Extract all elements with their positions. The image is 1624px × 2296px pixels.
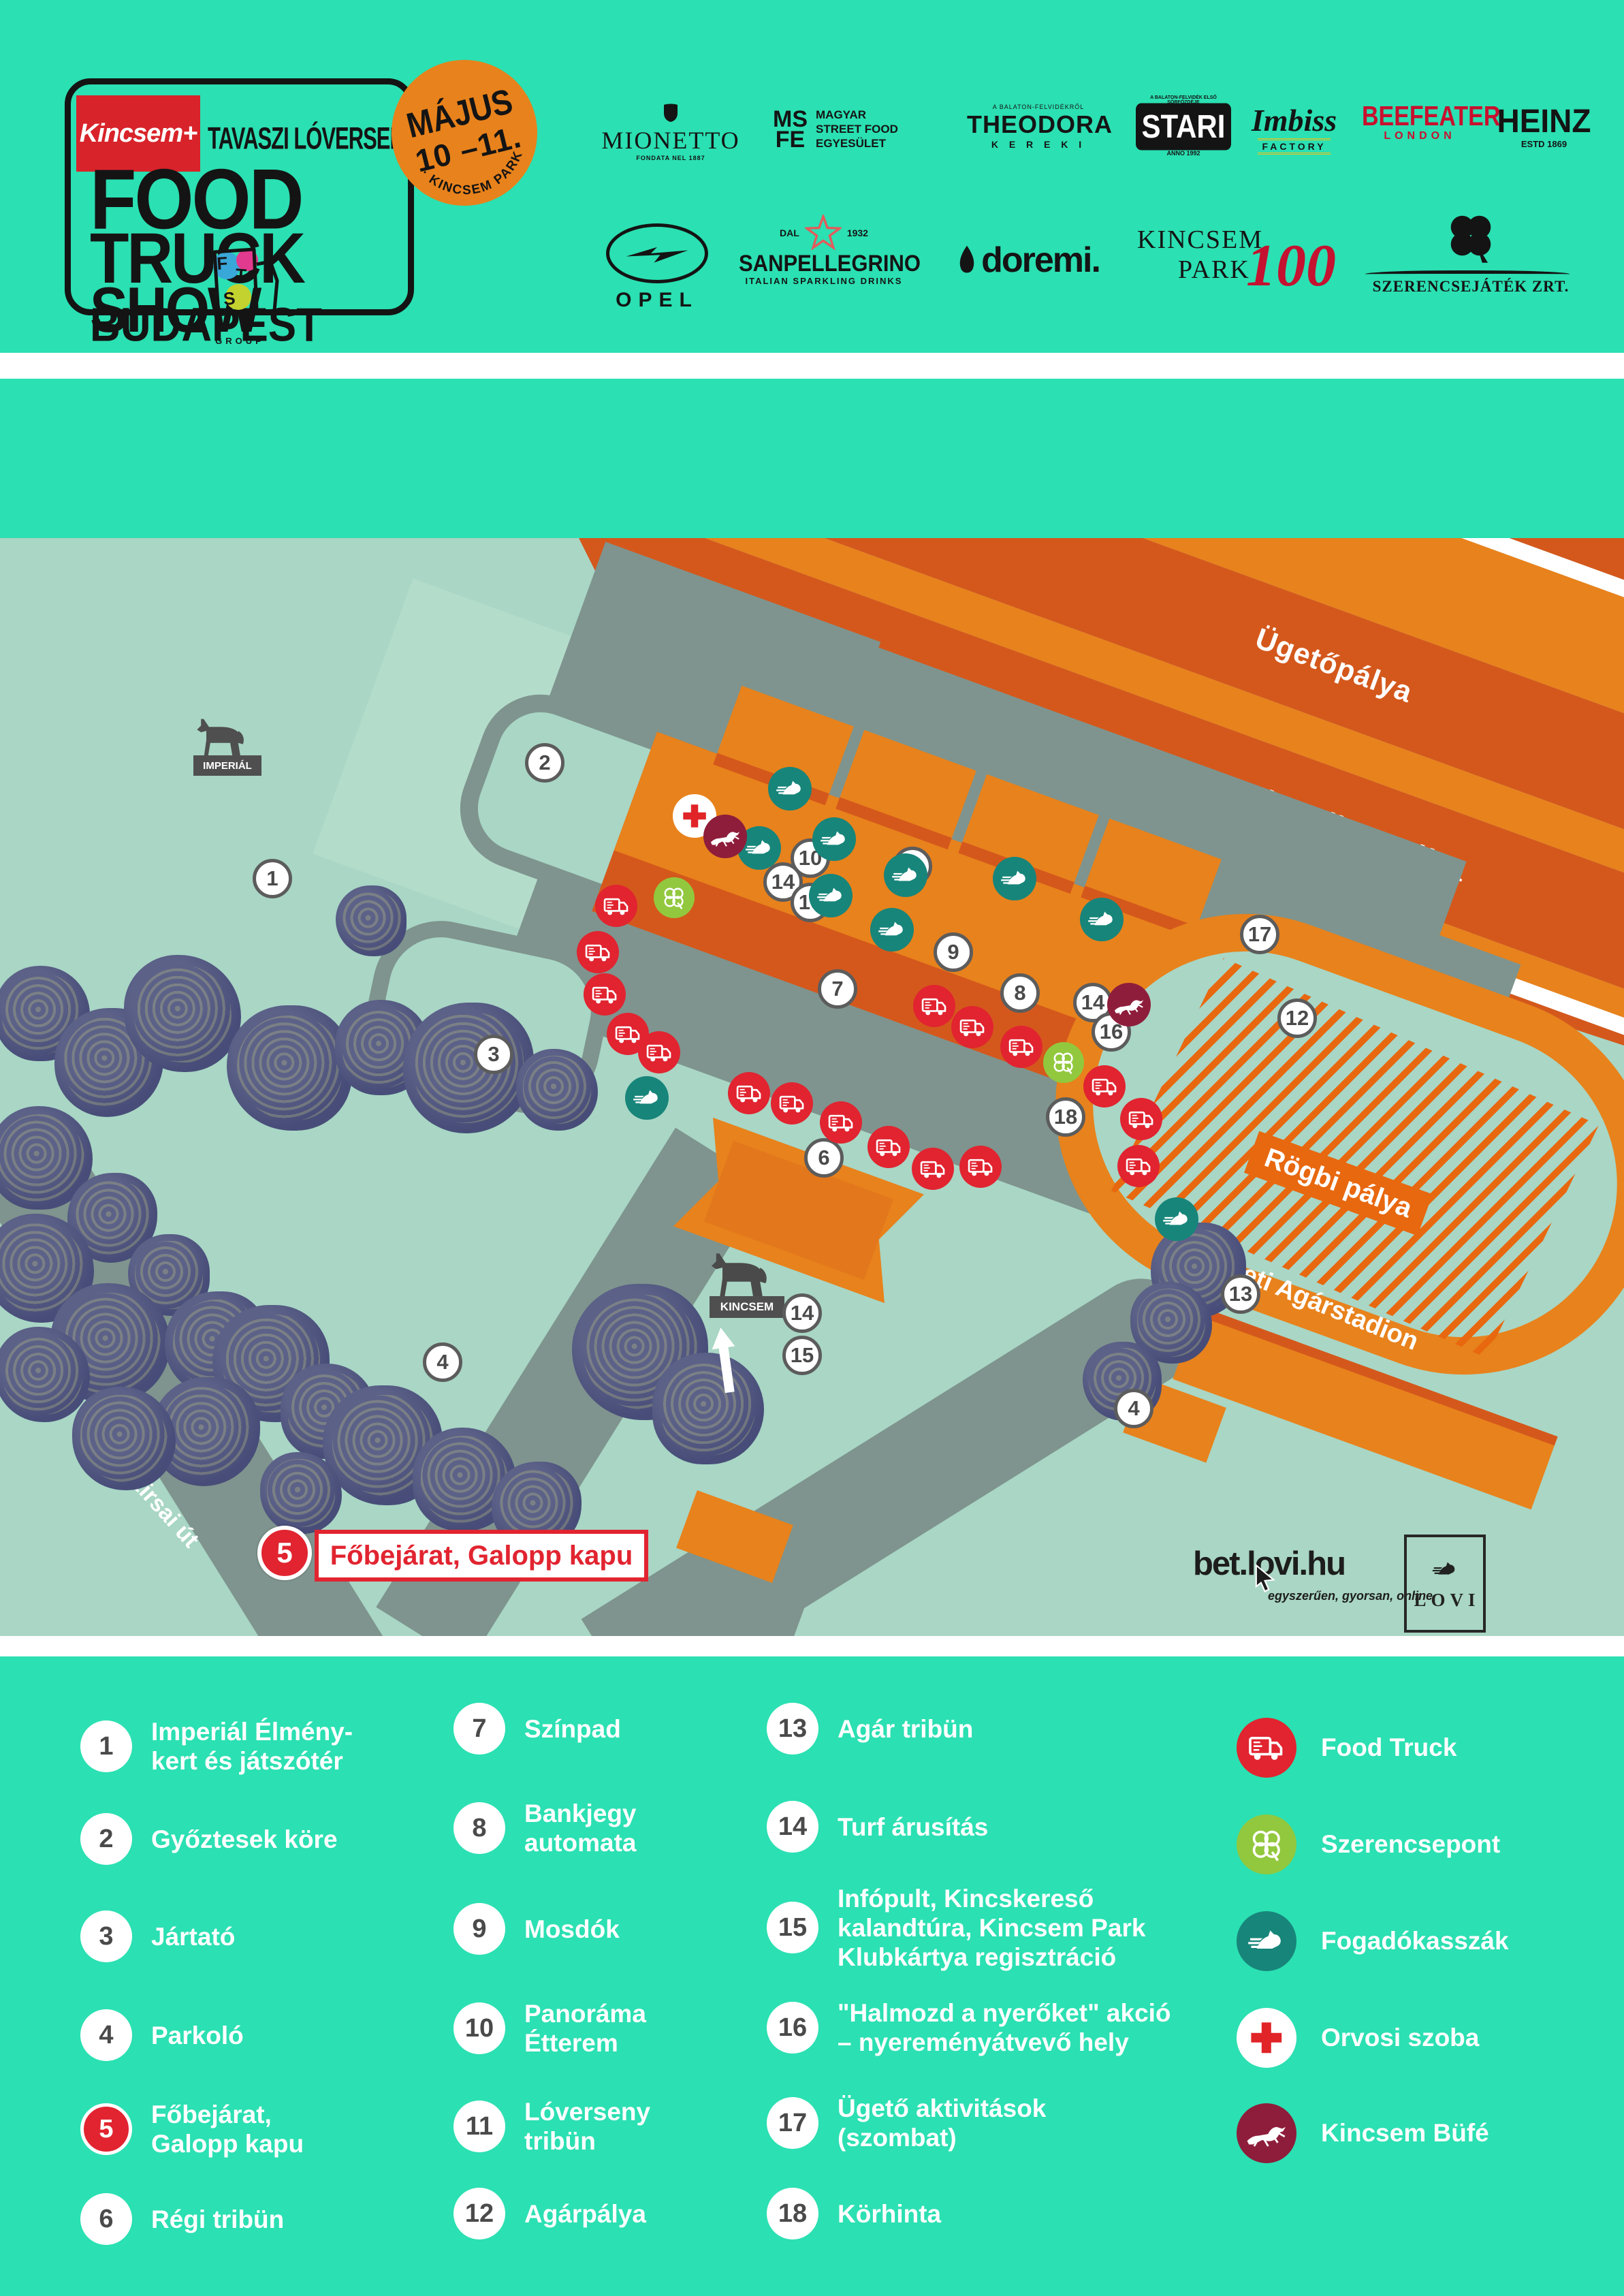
truck-marker xyxy=(728,1072,770,1114)
map-marker-1: 1 xyxy=(253,859,292,898)
truck-marker xyxy=(912,1148,954,1190)
theodora-top: A BALATON-FELVIDÉKRŐL xyxy=(967,104,1110,110)
stari-sub: ANNO 1992 xyxy=(1136,150,1231,157)
lucky-marker xyxy=(1043,1042,1084,1083)
betting-marker xyxy=(625,1076,669,1120)
map-marker-4: 4 xyxy=(423,1342,462,1382)
lovi-horse-icon xyxy=(1407,1555,1483,1587)
sponsor-heinz: HEINZ ESTD 1869 xyxy=(1491,102,1597,149)
map-marker-9: 9 xyxy=(934,932,973,972)
sponsor-opel: OPEL xyxy=(606,223,708,312)
sanpellegrino-star-icon xyxy=(805,215,842,251)
header-band: Kincsem+ TAVASZI LÓVERSENY ÉS FOOD TRUCK… xyxy=(0,0,1624,353)
heinz-name: HEINZ xyxy=(1491,101,1597,140)
sanpellegrino-name: SANPELLEGRINO xyxy=(739,250,909,277)
sponsor-mionetto: MIONETTO FONDATA NEL 1887 xyxy=(599,102,742,161)
heinz-sub: ESTD 1869 xyxy=(1491,139,1597,149)
msfe-glyph2: FE xyxy=(773,129,808,150)
truck-marker xyxy=(951,1006,993,1048)
mionetto-name: MIONETTO xyxy=(599,126,742,155)
legend-label-8: Bankjegyautomata xyxy=(524,1799,637,1857)
legend-num-7: 7 xyxy=(453,1703,505,1755)
betting-marker xyxy=(1155,1197,1198,1241)
svg-text:S: S xyxy=(222,287,236,309)
divider-strip xyxy=(0,353,1624,379)
truck-marker xyxy=(1120,1098,1162,1140)
lucky-marker xyxy=(654,877,695,918)
map-marker-5: 5 xyxy=(257,1526,312,1580)
svg-text:T: T xyxy=(234,264,247,285)
szerencsejatek-name: SZERENCSEJÁTÉK ZRT. xyxy=(1365,278,1576,296)
betting-marker xyxy=(812,817,856,861)
sponsor-beefeater: BEEFEATER LONDON xyxy=(1362,104,1478,142)
legend-num-17: 17 xyxy=(767,2097,818,2149)
imbiss-sub: FACTORY xyxy=(1258,138,1330,155)
buffet-marker xyxy=(703,815,747,858)
venue-map: Ügetőpálya Szintetikus pálya Gyeppálya xyxy=(0,538,1624,1636)
lovi-logo: LOVI xyxy=(1404,1535,1486,1633)
stari-name: STARI xyxy=(1136,104,1231,151)
betting-marker xyxy=(768,767,812,811)
legend-num-6: 6 xyxy=(80,2193,132,2245)
truck-marker xyxy=(595,885,637,927)
sanpellegrino-sub: ITALIAN SPARKLING DRINKS xyxy=(739,276,909,286)
opel-name: OPEL xyxy=(606,289,708,312)
msfe-line2: STREET FOOD xyxy=(816,122,898,136)
legend-band: 1Imperiál Élmény-kert és játszótér2Győzt… xyxy=(0,1656,1624,2296)
map-marker-15: 15 xyxy=(782,1336,822,1375)
fts-group-logo: F T S GROUP xyxy=(201,240,279,332)
main-entrance-label: Főbejárat, Galopp kapu xyxy=(315,1530,648,1582)
sponsor-doremi: doremi. xyxy=(946,240,1110,281)
map-marker-8: 8 xyxy=(1000,973,1040,1013)
legend-num-4: 4 xyxy=(80,2009,132,2061)
map-marker-6: 6 xyxy=(804,1138,844,1178)
theodora-name: THEODORA xyxy=(967,110,1110,139)
legend-num-16: 16 xyxy=(767,2002,818,2054)
legend-label-13: Agár tribün xyxy=(838,1714,973,1744)
imbiss-name: Imbiss xyxy=(1245,102,1343,138)
map-marker-4: 4 xyxy=(1114,1389,1153,1428)
sanpellegrino-year: 1932 xyxy=(847,227,868,238)
title-band: INFOTÉRKÉP #maradjonjáték A túlzásba vit… xyxy=(0,379,1624,538)
betting-marker xyxy=(870,908,914,952)
legend-icon-label-lucky: Szerencsepont xyxy=(1321,1829,1500,1859)
truck-marker xyxy=(584,973,626,1016)
kincsem-park-100: 100 xyxy=(1246,232,1336,300)
map-marker-14: 14 xyxy=(782,1293,822,1333)
truck-marker xyxy=(913,985,955,1027)
opel-blitz-icon xyxy=(623,238,691,269)
msfe-glyph1: MS xyxy=(773,109,808,129)
beefeater-name: BEEFEATER xyxy=(1362,101,1478,133)
legend-label-10: PanorámaÉtterem xyxy=(524,1999,646,2058)
truck-marker xyxy=(577,931,619,973)
sanpellegrino-dal: DAL xyxy=(780,227,799,238)
sponsor-stari: A BALATON-FELVIDÉK ELSŐ SÖRFŐZDÉJE STARI… xyxy=(1136,95,1231,157)
legend-label-4: Parkoló xyxy=(151,2021,244,2050)
svg-text:F: F xyxy=(216,253,228,274)
legend-num-18: 18 xyxy=(767,2188,818,2239)
legend-label-17: Ügető aktivitások(szombat) xyxy=(838,2094,1046,2152)
legend-num-14: 14 xyxy=(767,1801,818,1853)
sponsor-msfe: MS FE MAGYAR STREET FOOD EGYESÜLET xyxy=(773,108,936,151)
markers-layer: 1234456789101112131414141516161718 xyxy=(0,538,1624,1636)
truck-marker xyxy=(1000,1026,1042,1068)
theodora-sub: K E R E K I xyxy=(967,139,1110,150)
legend-label-12: Agárpálya xyxy=(524,2199,646,2229)
msfe-line3: EGYESÜLET xyxy=(816,136,898,151)
map-marker-3: 3 xyxy=(474,1035,513,1074)
sponsor-imbiss: Imbiss FACTORY xyxy=(1245,102,1343,155)
truck-marker xyxy=(638,1031,680,1073)
truck-marker xyxy=(771,1082,813,1125)
legend-icon-label-truck: Food Truck xyxy=(1321,1733,1456,1762)
sponsor-szerencsejatek: SZERENCSEJÁTÉK ZRT. xyxy=(1365,204,1576,296)
legend-num-11: 11 xyxy=(453,2101,505,2152)
legend-label-5: Főbejárat,Galopp kapu xyxy=(151,2100,304,2158)
legend-icon-label-medical: Orvosi szoba xyxy=(1321,2023,1479,2052)
legend-label-9: Mosdók xyxy=(524,1915,620,1944)
betting-marker xyxy=(884,853,927,897)
map-marker-13: 13 xyxy=(1221,1274,1260,1314)
fts-group-text: GROUP xyxy=(201,336,279,346)
legend-num-5: 5 xyxy=(80,2103,132,2155)
legend-label-1: Imperiál Élmény-kert és játszótér xyxy=(151,1717,353,1776)
mionetto-shield-icon xyxy=(662,102,680,123)
map-marker-2: 2 xyxy=(525,743,564,783)
truck-marker xyxy=(1117,1145,1160,1187)
mionetto-sub: FONDATA NEL 1887 xyxy=(599,155,742,161)
legend-icon-truck xyxy=(1237,1718,1296,1778)
legend-label-15: Infópult, Kincskeresőkalandtúra, Kincsem… xyxy=(838,1884,1145,1972)
legend-label-14: Turf árusítás xyxy=(838,1812,988,1842)
legend-num-8: 8 xyxy=(453,1802,505,1854)
betting-marker xyxy=(809,874,853,917)
msfe-line1: MAGYAR xyxy=(816,108,898,122)
truck-marker xyxy=(867,1126,910,1168)
legend-label-3: Jártató xyxy=(151,1922,235,1951)
divider-strip-2 xyxy=(0,1636,1624,1656)
legend-icon-lucky xyxy=(1237,1814,1296,1874)
legend-num-13: 13 xyxy=(767,1703,818,1755)
truck-marker xyxy=(959,1146,1002,1188)
buffet-marker xyxy=(1107,983,1151,1026)
legend-icon-label-buffet: Kincsem Büfé xyxy=(1321,2118,1489,2148)
map-marker-12: 12 xyxy=(1277,998,1317,1038)
doremi-name: doremi. xyxy=(981,240,1100,281)
legend-label-16: "Halmozd a nyerőket" akció– nyereményátv… xyxy=(838,1998,1171,2057)
doremi-drop-icon xyxy=(957,244,977,277)
legend-num-3: 3 xyxy=(80,1910,132,1962)
legend-num-10: 10 xyxy=(453,2002,505,2054)
legend-label-18: Körhinta xyxy=(838,2199,941,2229)
betting-marker xyxy=(993,857,1036,900)
map-marker-17: 17 xyxy=(1240,915,1279,954)
legend-icon-label-betting: Fogadókasszák xyxy=(1321,1926,1509,1955)
truck-marker xyxy=(820,1101,862,1144)
legend-num-12: 12 xyxy=(453,2188,505,2239)
truck-marker xyxy=(1083,1065,1126,1107)
map-marker-18: 18 xyxy=(1046,1097,1085,1137)
lovi-text: LOVI xyxy=(1411,1590,1483,1611)
legend-num-1: 1 xyxy=(80,1720,132,1772)
legend-icon-buffet xyxy=(1237,2103,1296,2163)
legend-label-11: Lóversenytribün xyxy=(524,2097,650,2156)
kincsem-plus-text: Kincsem+ xyxy=(80,119,197,148)
legend-icon-medical xyxy=(1237,2008,1296,2068)
szerencsejatek-clover-icon xyxy=(1439,204,1502,267)
legend-label-2: Győztesek köre xyxy=(151,1825,338,1854)
legend-icon-betting xyxy=(1237,1911,1296,1971)
sponsor-sanpellegrino: DAL 1932 SANPELLEGRINO ITALIAN SPARKLING… xyxy=(739,215,909,286)
legend-num-2: 2 xyxy=(80,1813,132,1865)
map-marker-7: 7 xyxy=(818,969,857,1009)
legend-num-9: 9 xyxy=(453,1903,505,1955)
legend-label-7: Színpad xyxy=(524,1714,621,1744)
betting-marker xyxy=(1080,898,1124,941)
legend-num-15: 15 xyxy=(767,1902,818,1953)
sponsor-kincsem-park: KINCSEM PARK 100 xyxy=(1137,225,1314,285)
sponsor-theodora: A BALATON-FELVIDÉKRŐL THEODORA K E R E K… xyxy=(967,104,1110,150)
legend-label-6: Régi tribün xyxy=(151,2205,284,2234)
